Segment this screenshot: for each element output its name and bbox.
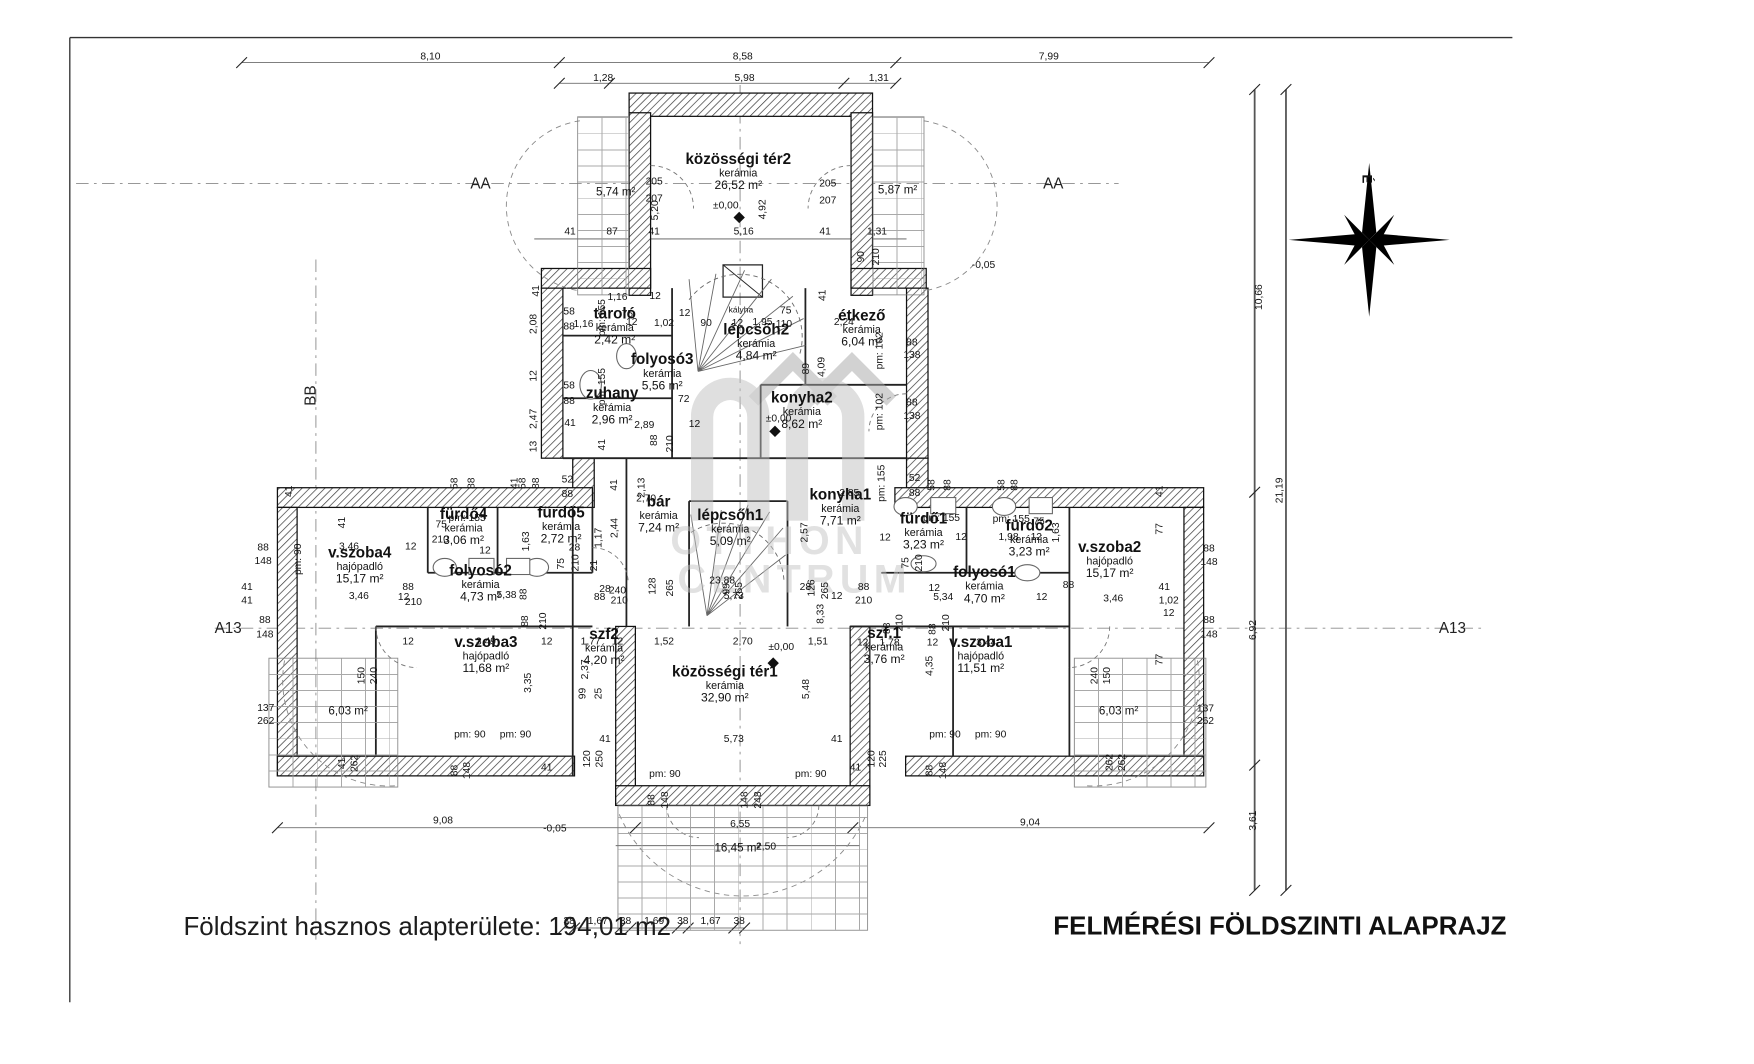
dim-label: pm: 155 bbox=[877, 465, 887, 502]
dim-label: 128 bbox=[648, 578, 658, 595]
dim-label: 137 bbox=[257, 704, 274, 714]
dim-label: 2,50 bbox=[756, 842, 776, 852]
dim-label: 88 bbox=[906, 338, 917, 348]
room-label-line: 11,51 m² bbox=[949, 662, 1012, 675]
dim-label: 88 bbox=[450, 765, 460, 776]
room-label-line: 5,09 m² bbox=[697, 535, 763, 548]
dim-label: ±0,00 bbox=[768, 643, 794, 653]
dim-label: 88 bbox=[519, 588, 529, 599]
dim-label: 88 bbox=[906, 398, 917, 408]
room-label-line: 2,96 m² bbox=[586, 413, 638, 426]
room-label-line: 5,56 m² bbox=[631, 379, 694, 392]
dim-label: 240 bbox=[370, 667, 380, 684]
dim-label: 12 bbox=[1036, 593, 1047, 603]
dim-label: 88 bbox=[259, 616, 270, 626]
dim-label: 5,87 m² bbox=[878, 184, 917, 196]
dim-label: pm: 102 bbox=[875, 393, 885, 430]
room-label-line: 15,17 m² bbox=[1078, 567, 1141, 580]
dim-label: 5,38 bbox=[496, 591, 516, 601]
dim-label: 210 bbox=[432, 535, 449, 545]
dim-label: 88 bbox=[647, 794, 657, 805]
section-marker: AA bbox=[470, 176, 490, 191]
dim-label: 77 bbox=[1156, 523, 1166, 534]
room-label-line: fürdő5 bbox=[537, 505, 584, 521]
dim-label: 58 bbox=[927, 479, 937, 490]
dim-label: 126 bbox=[807, 579, 817, 596]
dim-label: 12 bbox=[679, 309, 690, 319]
dim-label: 148 bbox=[1200, 630, 1217, 640]
dim-label: 10,66 bbox=[1255, 284, 1265, 310]
room-label-line: 32,90 m² bbox=[672, 692, 778, 705]
dim-label: 248 bbox=[754, 791, 764, 808]
room-label-line: 3,23 m² bbox=[1005, 546, 1052, 559]
section-marker: A13 bbox=[1439, 621, 1466, 636]
room-label-line: v.szoba4 bbox=[328, 545, 391, 561]
room-label-line: 4,84 m² bbox=[723, 350, 789, 363]
room-label-line: 3,76 m² bbox=[864, 653, 905, 666]
dim-label: 38 bbox=[677, 917, 688, 927]
dim-label: kályha bbox=[729, 306, 754, 315]
dim-label: 240 bbox=[1090, 667, 1100, 684]
dim-label: 72 bbox=[678, 395, 689, 405]
dim-label: 265 bbox=[735, 582, 745, 599]
dim-label: 12 bbox=[529, 370, 539, 381]
dim-label: pm: 90 bbox=[294, 544, 304, 575]
dim-label: 207 bbox=[819, 196, 836, 206]
dim-label: 1,28 bbox=[593, 74, 613, 84]
room-label: konyha2kerámia8,62 m² bbox=[771, 390, 833, 431]
dim-label: 12 bbox=[405, 543, 416, 553]
room-label: közösségi tér2kerámia26,52 m² bbox=[685, 151, 791, 192]
dim-label: 38 bbox=[733, 917, 744, 927]
dim-label: 3,46 bbox=[349, 592, 369, 602]
dim-label: 2,70 bbox=[636, 494, 656, 504]
room-label-line: közösségi tér1 bbox=[672, 664, 778, 680]
dim-label: pm: 155 bbox=[598, 299, 608, 336]
room-label-line: 3,23 m² bbox=[900, 539, 947, 552]
dim-label: 3,35 bbox=[524, 673, 534, 693]
room-label: v.szoba4hajópadló15,17 m² bbox=[328, 545, 391, 586]
dim-label: 1,31 bbox=[869, 74, 889, 84]
dim-label: 250 bbox=[595, 750, 605, 767]
dim-label: 88 bbox=[563, 397, 574, 407]
dim-label: 2,44 bbox=[611, 518, 621, 538]
dim-label: ±0,00 bbox=[713, 202, 739, 212]
dim-label: pm: 90 bbox=[649, 770, 680, 780]
room-label: folyosó1kerámia4,70 m² bbox=[953, 565, 1016, 606]
dim-label: 1,52 bbox=[654, 637, 674, 647]
dim-label: 88 bbox=[1011, 479, 1021, 490]
room-label-line: 4,70 m² bbox=[953, 592, 1016, 605]
dim-label: 12 bbox=[649, 292, 660, 302]
dim-label: 5,16 bbox=[734, 228, 754, 238]
compass-north-label: É bbox=[1359, 174, 1374, 183]
dim-label: 265 bbox=[821, 582, 831, 599]
dim-label: 8,58 bbox=[733, 52, 753, 62]
room-label-line: 15,17 m² bbox=[328, 573, 391, 586]
dim-label: 41 bbox=[599, 735, 610, 745]
dim-label: 41 bbox=[564, 228, 575, 238]
dim-label: pm: 155 bbox=[923, 514, 960, 524]
dim-label: 12 bbox=[689, 420, 700, 430]
dim-label: 12 bbox=[402, 637, 413, 647]
dim-label: 12 bbox=[732, 319, 743, 329]
dim-label: pm: 90 bbox=[929, 730, 960, 740]
dim-label: 1,02 bbox=[654, 319, 674, 329]
dim-label: pm: 102 bbox=[875, 332, 885, 369]
dim-label: 41 bbox=[819, 228, 830, 238]
room-label-line: zuhany bbox=[586, 386, 638, 402]
dim-label: pm: 90 bbox=[795, 770, 826, 780]
dim-label: 90 bbox=[700, 319, 711, 329]
dim-label: 12 bbox=[541, 637, 552, 647]
dim-label: 2,47 bbox=[529, 409, 539, 429]
room-label-line: 7,71 m² bbox=[809, 515, 871, 528]
dim-label: 25 bbox=[594, 688, 604, 699]
dim-label: 137 bbox=[1197, 705, 1214, 715]
dim-label: 4,09 bbox=[817, 357, 827, 377]
dim-label: 210 bbox=[942, 614, 952, 631]
room-label-line: konyha2 bbox=[771, 390, 833, 406]
dim-label: pm: 155 bbox=[449, 514, 486, 524]
dim-label: pm: 155 bbox=[993, 515, 1030, 525]
dim-label: 9,04 bbox=[1020, 818, 1040, 828]
dim-label: pm: 90 bbox=[975, 730, 1006, 740]
dim-label: 1,77 bbox=[581, 637, 601, 647]
dim-label: 148 bbox=[740, 791, 750, 808]
dim-label: 75 bbox=[435, 520, 446, 530]
dim-label: 5,48 bbox=[802, 679, 812, 699]
footer-area-total: Földszint hasznos alapterülete: 194,01 m… bbox=[183, 913, 671, 943]
dim-label: 41 bbox=[1159, 583, 1170, 593]
dim-label: 3,44 bbox=[976, 638, 996, 648]
dim-label: 3,46 bbox=[339, 543, 359, 553]
dim-label: 12 bbox=[612, 637, 623, 647]
dim-label: 110 bbox=[776, 320, 792, 330]
compass-icon bbox=[1289, 163, 1450, 317]
room-label: közösségi tér1kerámia32,90 m² bbox=[672, 664, 778, 705]
dim-label: 75 bbox=[901, 557, 911, 568]
dim-label: 8,10 bbox=[420, 52, 440, 62]
dim-label: 88 bbox=[928, 623, 938, 634]
dim-label: 12 bbox=[955, 533, 966, 543]
dim-label: pm: 90 bbox=[500, 730, 531, 740]
dim-label: 12 bbox=[831, 592, 842, 602]
dim-label: 1,31 bbox=[867, 228, 887, 238]
dim-label: 1,78 bbox=[880, 638, 900, 648]
section-marker: A13 bbox=[215, 621, 242, 636]
room-label-line: 11,68 m² bbox=[454, 662, 517, 675]
dim-label: 88 bbox=[926, 765, 936, 776]
dim-label: 1,63 bbox=[1052, 522, 1062, 542]
dim-label: 58 bbox=[563, 307, 574, 317]
dim-label: 41 bbox=[285, 486, 295, 497]
dim-label: 2,08 bbox=[529, 314, 539, 334]
dim-label: 41 bbox=[532, 285, 542, 296]
dim-label: 58 bbox=[563, 381, 574, 391]
room-label-line: 26,52 m² bbox=[685, 179, 791, 192]
dim-label: 75 bbox=[1033, 517, 1044, 527]
dim-label: 41 bbox=[610, 479, 620, 490]
dim-label: pm: 155 bbox=[598, 368, 608, 405]
dim-label: 87 bbox=[606, 228, 617, 238]
dim-label: 75 bbox=[780, 306, 791, 316]
dim-label: 148 bbox=[1200, 558, 1217, 568]
dim-label: 88 bbox=[521, 615, 531, 626]
room-label: folyosó3kerámia5,56 m² bbox=[631, 352, 694, 393]
drawing-title: FELMÉRÉSI FÖLDSZINTI ALAPRAJZ bbox=[1053, 912, 1506, 942]
dim-label: 1,95 bbox=[752, 318, 772, 328]
dim-label: 41 bbox=[564, 419, 575, 429]
dim-label: 210 bbox=[895, 614, 905, 631]
room-label-line: közösségi tér2 bbox=[685, 151, 791, 167]
room-label: v.szoba2hajópadló15,17 m² bbox=[1078, 540, 1141, 581]
dim-label: 4,35 bbox=[926, 656, 936, 676]
dim-label: 88 bbox=[562, 490, 573, 500]
dim-label: -0,05 bbox=[972, 261, 995, 271]
dim-label: 6,55 bbox=[730, 820, 750, 830]
dim-label: 205 bbox=[646, 177, 663, 187]
dim-label: 148 bbox=[463, 762, 473, 779]
dim-label: 16,45 m² bbox=[714, 842, 760, 854]
dim-label: 5,98 bbox=[735, 74, 755, 84]
dim-label: 6,92 bbox=[1249, 620, 1259, 640]
dim-label: 205 bbox=[819, 179, 836, 189]
dim-label: 210 bbox=[872, 248, 882, 265]
dim-label: 88 bbox=[858, 583, 869, 593]
dim-label: 148 bbox=[939, 762, 949, 779]
dim-label: ±0,00 bbox=[766, 415, 792, 425]
dim-label: 41 bbox=[241, 596, 252, 606]
dim-label: 120 bbox=[867, 750, 877, 767]
dim-label: 210 bbox=[405, 598, 422, 608]
dim-label: 58 bbox=[518, 478, 528, 489]
dim-label: -0,05 bbox=[543, 824, 566, 834]
dim-label: 41 bbox=[598, 439, 608, 450]
dim-label: 75 bbox=[557, 558, 567, 569]
dim-label: 41 bbox=[338, 517, 348, 528]
dim-label: 2,89 bbox=[634, 421, 654, 431]
dim-label: 90 bbox=[857, 251, 867, 262]
dim-label: 148 bbox=[256, 630, 273, 640]
dim-label: 77 bbox=[1156, 654, 1166, 665]
dim-label: 225 bbox=[879, 750, 889, 767]
room-label: zuhanykerámia2,96 m² bbox=[586, 386, 638, 427]
dim-label: 41 bbox=[1156, 486, 1166, 497]
dim-label: 262 bbox=[1105, 754, 1115, 771]
section-marker: BB bbox=[303, 385, 318, 405]
dim-label: 88 bbox=[467, 478, 477, 489]
dim-label: 265 bbox=[666, 579, 676, 596]
dim-label: 262 bbox=[1197, 717, 1214, 727]
terrace-top-right bbox=[873, 116, 925, 295]
dim-label: 12 bbox=[929, 584, 940, 594]
dim-label: 88 bbox=[1063, 581, 1074, 591]
dim-label: pm: 90 bbox=[454, 730, 485, 740]
dim-label: 52 bbox=[909, 474, 920, 484]
dim-label: 88 bbox=[1203, 616, 1214, 626]
dim-label: 12 bbox=[479, 546, 490, 556]
dim-label: 13 bbox=[529, 441, 539, 452]
dim-label: 1,63 bbox=[522, 531, 532, 551]
dim-label: 41 bbox=[831, 735, 842, 745]
dim-label: 52 bbox=[562, 475, 573, 485]
room-label-line: folyosó3 bbox=[631, 352, 694, 368]
dim-label: 9,08 bbox=[433, 816, 453, 826]
dim-label: 3,61 bbox=[1249, 811, 1259, 831]
dim-label: 88 bbox=[909, 489, 920, 499]
dim-label: 1,98 bbox=[999, 533, 1019, 543]
room-label-line: lépcsőh1 bbox=[697, 507, 763, 523]
dim-label: 12 bbox=[927, 638, 938, 648]
dim-label: 2,37 bbox=[581, 659, 591, 679]
dim-label: 2,85 bbox=[839, 489, 859, 499]
dim-label: 41 bbox=[818, 290, 828, 301]
dim-label: 120 bbox=[583, 750, 593, 767]
dim-label: 262 bbox=[257, 717, 274, 727]
dim-label: 7,99 bbox=[1039, 52, 1059, 62]
dim-label: 12 bbox=[626, 318, 637, 328]
dim-label: 1,16 bbox=[607, 293, 627, 303]
dim-label: 89 bbox=[802, 363, 812, 374]
dim-label: 41 bbox=[241, 583, 252, 593]
dim-label: 41 bbox=[850, 764, 861, 774]
dim-label: 1,02 bbox=[1159, 596, 1179, 606]
dim-label: 1,16 bbox=[573, 320, 593, 330]
dim-label: 12 bbox=[1031, 533, 1042, 543]
dim-label: 2,24 bbox=[834, 318, 854, 328]
dim-label: 138 bbox=[903, 412, 920, 422]
dim-label: 150 bbox=[1103, 667, 1113, 684]
floorplan-sheet: OTTHON CENTRUM É közösségi tér2kerámia26… bbox=[0, 0, 1754, 1064]
dim-label: 41 bbox=[541, 764, 552, 774]
dim-label: 88 bbox=[257, 543, 268, 553]
dim-label: 1,51 bbox=[808, 637, 828, 647]
plan-canvas: OTTHON CENTRUM É közösségi tér2kerámia26… bbox=[0, 0, 1754, 1064]
dim-label: 3,46 bbox=[1103, 594, 1123, 604]
dim-label: 5,20 bbox=[651, 200, 661, 220]
dim-label: 2,57 bbox=[800, 522, 810, 542]
room-label-line: folyosó2 bbox=[449, 563, 512, 579]
dim-label: 12 bbox=[857, 638, 868, 648]
dim-label: 88 bbox=[594, 593, 605, 603]
dim-label: 5,74 m² bbox=[596, 186, 635, 198]
dim-label: 12 bbox=[1163, 609, 1174, 619]
dim-label: 88 bbox=[1203, 544, 1214, 554]
dim-label: 88 bbox=[943, 479, 953, 490]
room-label-line: folyosó1 bbox=[953, 565, 1016, 581]
terrace-top-left bbox=[577, 116, 629, 295]
dim-label: 12 bbox=[879, 534, 890, 544]
dim-label: 99 bbox=[578, 688, 588, 699]
dim-label: 150 bbox=[357, 667, 367, 684]
dim-label: 1,67 bbox=[701, 917, 721, 927]
room-label-line: v.szoba2 bbox=[1078, 540, 1141, 556]
dim-label: 41 bbox=[648, 228, 659, 238]
dim-label: 21,19 bbox=[1275, 478, 1285, 504]
room-label: fürdő5kerámia2,72 m² bbox=[537, 505, 584, 546]
dim-label: 6,03 m² bbox=[1099, 705, 1138, 717]
dim-label: 3,49 bbox=[476, 637, 496, 647]
dim-label: 1,17 bbox=[594, 528, 604, 548]
dim-label: 210 bbox=[571, 554, 581, 571]
dim-label: 262 bbox=[350, 755, 360, 772]
dim-label: 58 bbox=[997, 479, 1007, 490]
dim-label: 6,03 m² bbox=[328, 705, 367, 717]
dim-label: 5,34 bbox=[933, 593, 953, 603]
room-label-line: 7,24 m² bbox=[638, 522, 679, 535]
dim-label: 88 bbox=[532, 478, 542, 489]
dim-label: 8,33 bbox=[816, 604, 826, 624]
dim-label: 5,73 bbox=[724, 735, 744, 745]
dim-label: 28 bbox=[569, 543, 580, 553]
dim-label: 210 bbox=[915, 554, 925, 571]
dim-label: 2,70 bbox=[733, 637, 753, 647]
dim-label: 41 bbox=[338, 758, 348, 769]
dim-label: 210 bbox=[611, 596, 628, 606]
dim-label: 210 bbox=[666, 435, 676, 452]
dim-label: 4,92 bbox=[758, 199, 768, 219]
dim-label: 138 bbox=[903, 351, 920, 361]
dim-label: 148 bbox=[255, 557, 272, 567]
dim-label: 210 bbox=[539, 612, 549, 629]
section-marker: AA bbox=[1043, 176, 1063, 191]
dim-label: 210 bbox=[855, 596, 872, 606]
dim-label: 262 bbox=[1118, 754, 1128, 771]
dim-label: 21 bbox=[590, 560, 600, 571]
dim-label: 88 bbox=[650, 435, 660, 446]
dim-label: 58 bbox=[450, 478, 460, 489]
dim-label: 148 bbox=[661, 791, 671, 808]
dim-label: 88 bbox=[883, 622, 893, 633]
room-label: lépcsőh1kerámia5,09 m² bbox=[697, 507, 763, 548]
